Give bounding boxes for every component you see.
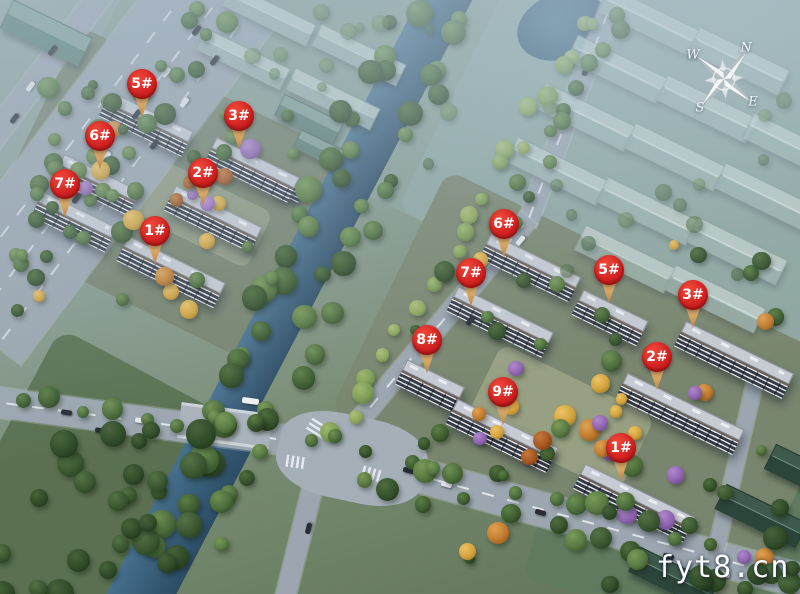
map-pin-west-6: 6# xyxy=(85,121,115,151)
map-pin-west-7: 7# xyxy=(50,169,80,199)
map-pin-east-6: 6# xyxy=(489,209,519,239)
map-pin-west-2: 2# xyxy=(188,158,218,188)
aerial-site-plan: N E S W 5#6#3#2#7#1#6#7#5#3#8#2#9#1# fyt… xyxy=(0,0,800,594)
map-pin-east-3: 3# xyxy=(678,280,708,310)
map-pin-east-9: 9# xyxy=(488,377,518,407)
map-pin-east-2: 2# xyxy=(642,342,672,372)
pin-label: 5# xyxy=(127,69,157,99)
map-pin-west-1: 1# xyxy=(140,216,170,246)
pin-label: 6# xyxy=(489,209,519,239)
pin-label: 2# xyxy=(642,342,672,372)
watermark: fyt8.cn xyxy=(656,550,789,585)
pin-label: 7# xyxy=(456,258,486,288)
map-pin-east-8: 8# xyxy=(412,325,442,355)
map-pin-east-1: 1# xyxy=(606,433,636,463)
map-pin-west-3: 3# xyxy=(224,101,254,131)
pin-label: 9# xyxy=(488,377,518,407)
pin-label: 1# xyxy=(140,216,170,246)
map-pin-west-5: 5# xyxy=(127,69,157,99)
pin-label: 2# xyxy=(188,158,218,188)
map-pin-east-7: 7# xyxy=(456,258,486,288)
pin-label: 5# xyxy=(594,255,624,285)
map-pin-east-5: 5# xyxy=(594,255,624,285)
pin-label: 3# xyxy=(678,280,708,310)
pin-label: 3# xyxy=(224,101,254,131)
pin-label: 8# xyxy=(412,325,442,355)
building-pins: 5#6#3#2#7#1#6#7#5#3#8#2#9#1# xyxy=(0,0,800,594)
pin-label: 7# xyxy=(50,169,80,199)
pin-label: 1# xyxy=(606,433,636,463)
pin-label: 6# xyxy=(85,121,115,151)
